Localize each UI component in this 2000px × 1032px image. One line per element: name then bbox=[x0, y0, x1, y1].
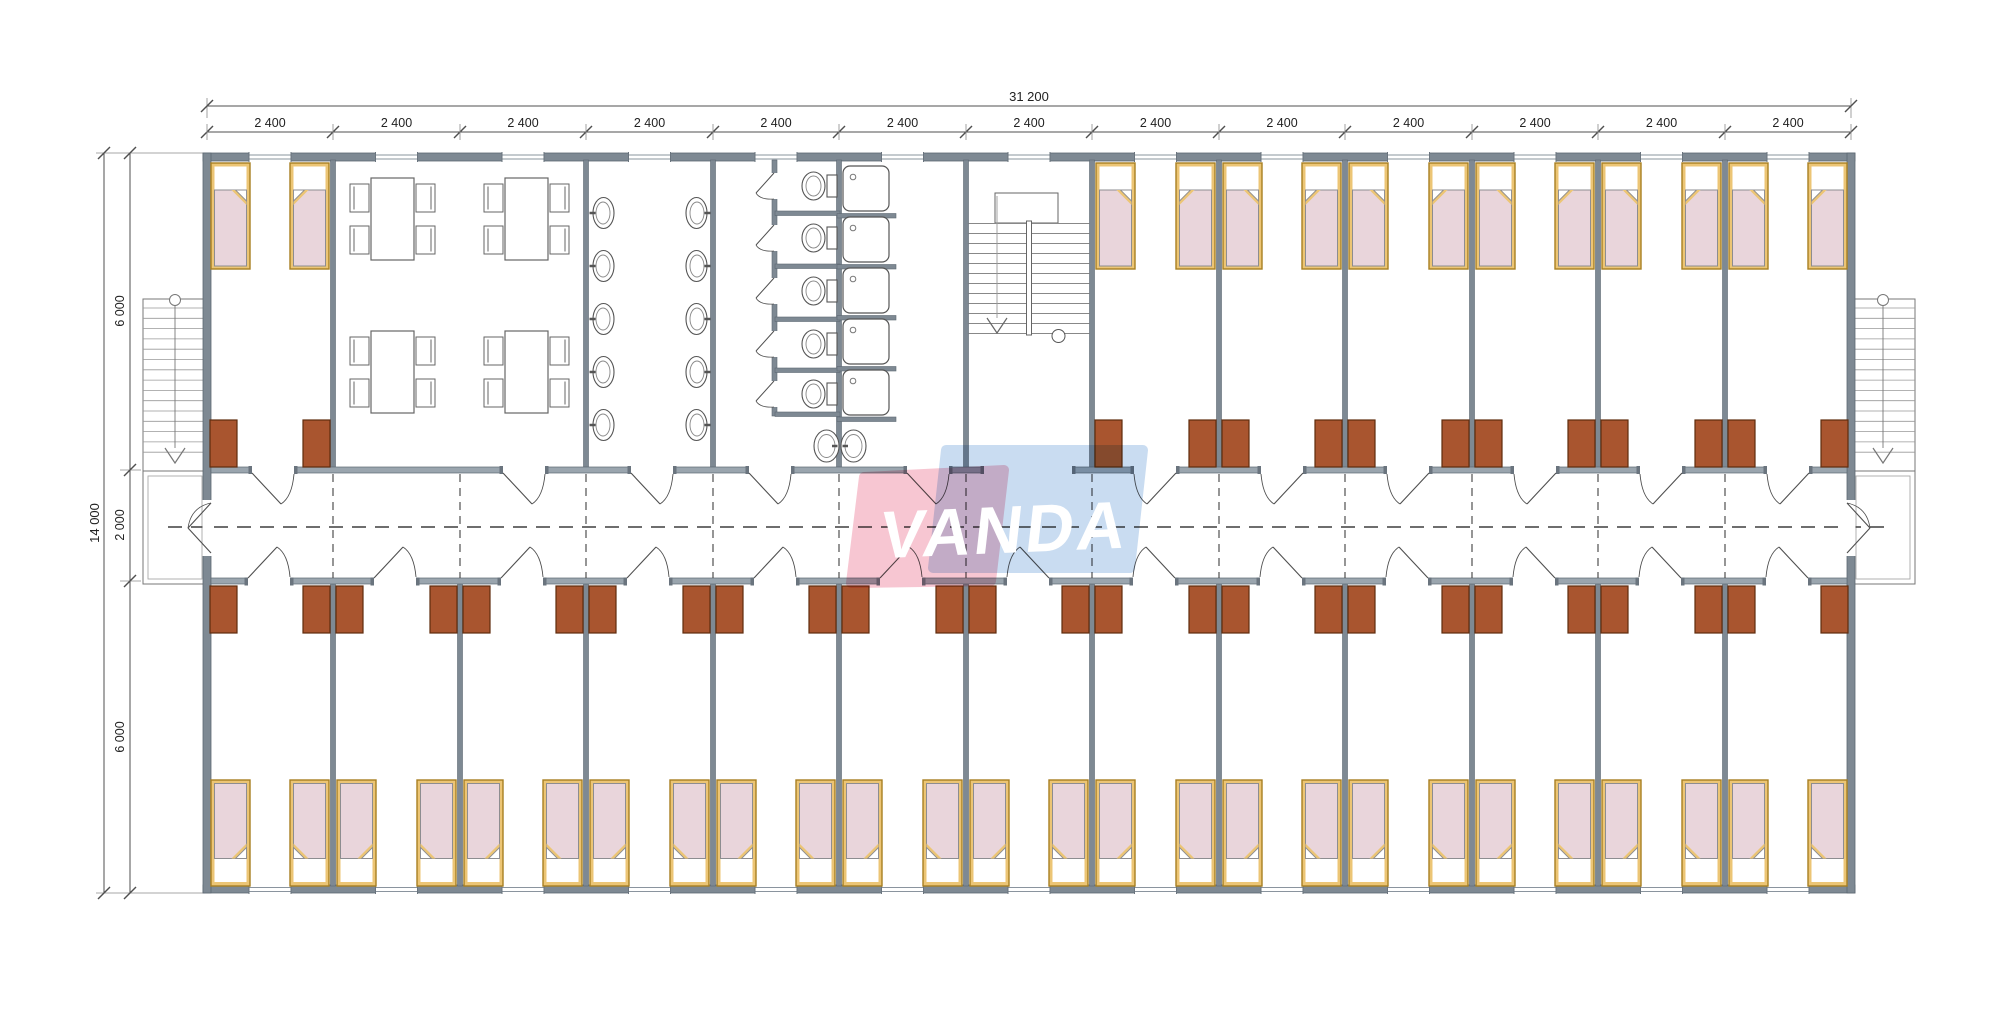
dining-table bbox=[350, 331, 435, 413]
washbasin bbox=[590, 410, 615, 441]
bed bbox=[543, 780, 582, 886]
cabinet bbox=[1728, 420, 1755, 467]
bed bbox=[717, 780, 756, 886]
bed bbox=[290, 780, 329, 886]
toilet bbox=[802, 330, 837, 358]
floor-plan-canvas: 31 200 2 400 2 400 2 400 2 400 2 400 2 4… bbox=[0, 0, 2000, 1032]
cabinet bbox=[1601, 420, 1628, 467]
bedroom-bottom-10 bbox=[1348, 586, 1469, 886]
bed bbox=[1729, 163, 1768, 269]
bed bbox=[970, 780, 1009, 886]
cabinet bbox=[1062, 586, 1089, 633]
cabinet bbox=[1315, 420, 1342, 467]
cabinet bbox=[210, 586, 237, 633]
cabinet bbox=[1821, 420, 1848, 467]
cabinet bbox=[210, 420, 237, 467]
washbasin bbox=[590, 304, 615, 335]
washbasin bbox=[686, 410, 711, 441]
bedroom-top-2 bbox=[1095, 163, 1216, 467]
bedroom-bottom-12 bbox=[1601, 586, 1722, 886]
dining-table bbox=[350, 178, 435, 260]
bed bbox=[1302, 780, 1341, 886]
bed bbox=[1682, 780, 1721, 886]
cabinet bbox=[1695, 586, 1722, 633]
bay-width-label: 2 400 bbox=[634, 116, 665, 130]
overall-width-label: 31 200 bbox=[1009, 89, 1049, 104]
cabinet bbox=[842, 586, 869, 633]
shower-tray bbox=[843, 166, 889, 211]
dining-table bbox=[484, 178, 569, 260]
top-dimension: 31 200 2 400 2 400 2 400 2 400 2 400 2 4… bbox=[201, 89, 1857, 140]
cabinet bbox=[969, 586, 996, 633]
bedroom-top-5 bbox=[1475, 163, 1595, 467]
bed bbox=[417, 780, 456, 886]
toilet bbox=[802, 172, 837, 200]
cabinet bbox=[1348, 420, 1375, 467]
cabinet bbox=[1821, 586, 1848, 633]
shower-stalls bbox=[837, 166, 896, 422]
bed bbox=[290, 163, 329, 269]
cabinet bbox=[809, 586, 836, 633]
shower-tray bbox=[843, 268, 889, 313]
bed bbox=[1176, 780, 1215, 886]
bay-width-label: 2 400 bbox=[507, 116, 538, 130]
bedroom-top-6 bbox=[1601, 163, 1722, 467]
bed bbox=[1555, 163, 1594, 269]
cabinet bbox=[463, 586, 490, 633]
bedroom-top-3 bbox=[1222, 163, 1342, 467]
bed bbox=[1429, 163, 1468, 269]
shower-tray bbox=[843, 319, 889, 364]
bed bbox=[1176, 163, 1215, 269]
cabinet bbox=[303, 420, 330, 467]
bedroom-bottom-8 bbox=[1095, 586, 1216, 886]
washbasin bbox=[686, 357, 711, 388]
bed bbox=[1302, 163, 1341, 269]
bedroom-bottom-11 bbox=[1475, 586, 1595, 886]
bed bbox=[1729, 780, 1768, 886]
height-segment-label: 2 000 bbox=[113, 509, 127, 540]
bed bbox=[796, 780, 835, 886]
bedroom-bottom-7 bbox=[969, 586, 1089, 886]
bed bbox=[1349, 163, 1388, 269]
cabinet bbox=[1189, 586, 1216, 633]
bedroom-bottom-3 bbox=[463, 586, 583, 886]
bed bbox=[1602, 780, 1641, 886]
bed bbox=[211, 163, 250, 269]
cabinet bbox=[1728, 586, 1755, 633]
bedroom-bottom-2 bbox=[336, 586, 457, 886]
cabinet bbox=[1442, 420, 1469, 467]
washbasin bbox=[590, 357, 615, 388]
bed bbox=[1555, 780, 1594, 886]
cabinet bbox=[1568, 420, 1595, 467]
bay-width-label: 2 400 bbox=[254, 116, 285, 130]
bedroom-bottom-5 bbox=[716, 586, 836, 886]
floor-plan-svg: 31 200 2 400 2 400 2 400 2 400 2 400 2 4… bbox=[0, 0, 2000, 1032]
cabinet bbox=[1222, 586, 1249, 633]
cabinet bbox=[1475, 420, 1502, 467]
cabinet bbox=[1695, 420, 1722, 467]
bed bbox=[590, 780, 629, 886]
bed bbox=[1429, 780, 1468, 886]
bed bbox=[1223, 780, 1262, 886]
bay-width-label: 2 400 bbox=[1140, 116, 1171, 130]
bedroom-top-4 bbox=[1348, 163, 1469, 467]
bay-width-label: 2 400 bbox=[1519, 116, 1550, 130]
bed bbox=[1602, 163, 1641, 269]
cabinet bbox=[1095, 586, 1122, 633]
cabinet bbox=[430, 586, 457, 633]
cabinet bbox=[1189, 420, 1216, 467]
shower-tray bbox=[843, 217, 889, 262]
staircase-internal bbox=[969, 193, 1090, 343]
cabinet bbox=[1601, 586, 1628, 633]
cabinet bbox=[683, 586, 710, 633]
washbasin bbox=[590, 251, 615, 282]
washbasin bbox=[686, 304, 711, 335]
cabinet bbox=[336, 586, 363, 633]
bedroom-bottom-13 bbox=[1728, 586, 1848, 886]
bed bbox=[464, 780, 503, 886]
washbasin bbox=[686, 198, 711, 229]
cabinet bbox=[1568, 586, 1595, 633]
bed bbox=[843, 780, 882, 886]
toilet bbox=[802, 277, 837, 305]
bed bbox=[1476, 163, 1515, 269]
bed bbox=[1223, 163, 1262, 269]
cabinet bbox=[556, 586, 583, 633]
bed bbox=[1682, 163, 1721, 269]
shower-tray bbox=[843, 370, 889, 415]
bed bbox=[1349, 780, 1388, 886]
washroom bbox=[590, 198, 711, 441]
bed bbox=[1808, 780, 1847, 886]
dining-table bbox=[484, 331, 569, 413]
cabinet bbox=[1442, 586, 1469, 633]
cabinet bbox=[1222, 420, 1249, 467]
toilet bbox=[802, 224, 837, 252]
bed bbox=[1096, 163, 1135, 269]
bay-width-label: 2 400 bbox=[1266, 116, 1297, 130]
bay-width-label: 2 400 bbox=[1772, 116, 1803, 130]
cabinet bbox=[1348, 586, 1375, 633]
bed bbox=[1476, 780, 1515, 886]
bedroom-bottom-9 bbox=[1222, 586, 1342, 886]
staircase-external-right bbox=[1851, 295, 1915, 585]
bay-width-label: 2 400 bbox=[1393, 116, 1424, 130]
bed bbox=[1808, 163, 1847, 269]
bay-width-label: 2 400 bbox=[381, 116, 412, 130]
cabinet bbox=[303, 586, 330, 633]
cabinet bbox=[716, 586, 743, 633]
toilet bbox=[802, 380, 837, 408]
bedroom-bottom-1 bbox=[210, 586, 330, 886]
bay-width-label: 2 400 bbox=[1646, 116, 1677, 130]
bedroom-top-1 bbox=[210, 163, 330, 467]
height-segment-label: 6 000 bbox=[113, 721, 127, 752]
cabinet bbox=[589, 586, 616, 633]
cabinet bbox=[1315, 586, 1342, 633]
dining-area bbox=[350, 178, 569, 413]
cabinet bbox=[936, 586, 963, 633]
staircase-external-left bbox=[143, 295, 207, 585]
bed bbox=[923, 780, 962, 886]
bay-width-label: 2 400 bbox=[760, 116, 791, 130]
washbasin bbox=[686, 251, 711, 282]
washbasin bbox=[590, 198, 615, 229]
bed bbox=[670, 780, 709, 886]
bed bbox=[1096, 780, 1135, 886]
bedroom-bottom-4 bbox=[589, 586, 710, 886]
bay-width-label: 2 400 bbox=[1013, 116, 1044, 130]
bed bbox=[1049, 780, 1088, 886]
bed bbox=[211, 780, 250, 886]
height-segment-label: 6 000 bbox=[113, 295, 127, 326]
bedroom-bottom-6 bbox=[842, 586, 963, 886]
logo-text: VANDA bbox=[876, 488, 1133, 574]
cabinet bbox=[1475, 586, 1502, 633]
bay-width-label: 2 400 bbox=[887, 116, 918, 130]
bedroom-top-7 bbox=[1728, 163, 1848, 467]
overall-height-label: 14 000 bbox=[87, 503, 102, 543]
bed bbox=[337, 780, 376, 886]
